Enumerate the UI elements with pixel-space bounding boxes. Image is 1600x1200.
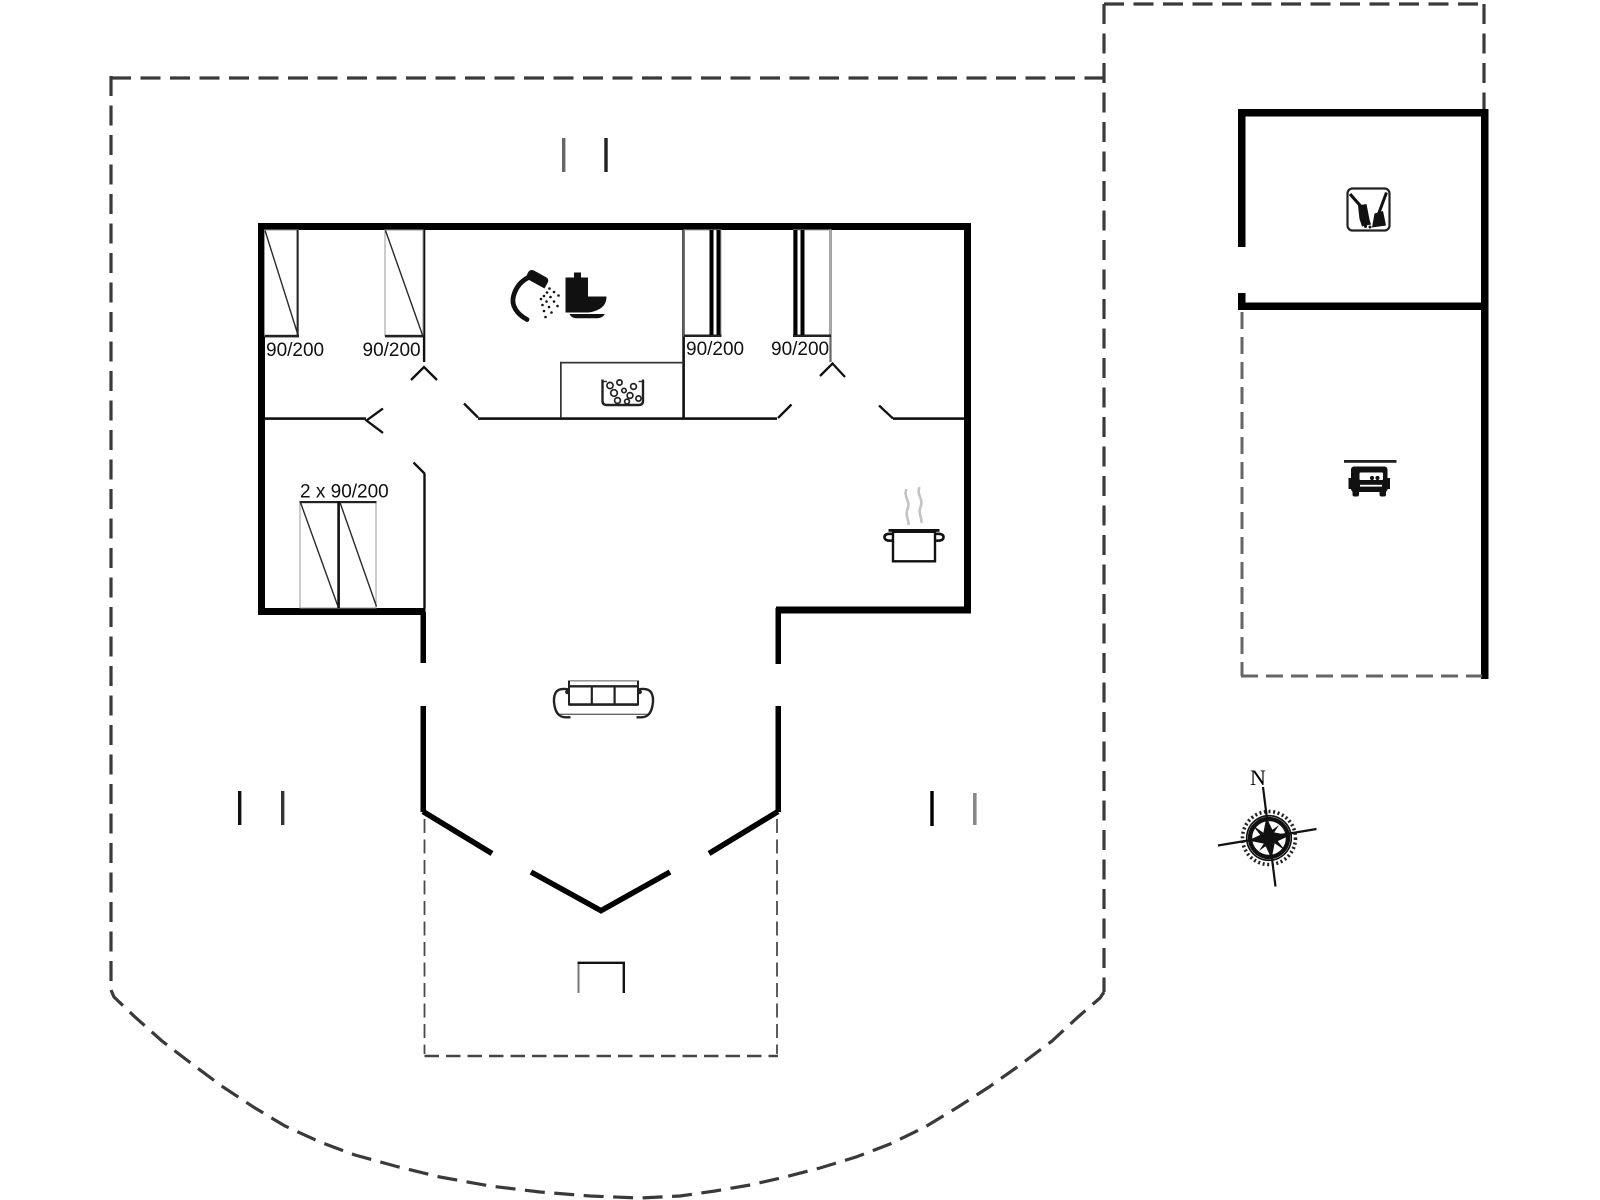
- svg-text:90/200: 90/200: [686, 339, 744, 360]
- svg-text:90/200: 90/200: [363, 340, 421, 361]
- svg-text:90/200: 90/200: [771, 339, 829, 360]
- svg-text:2 x 90/200: 2 x 90/200: [300, 482, 389, 503]
- svg-text:90/200: 90/200: [266, 340, 324, 361]
- svg-text:N: N: [1250, 765, 1266, 790]
